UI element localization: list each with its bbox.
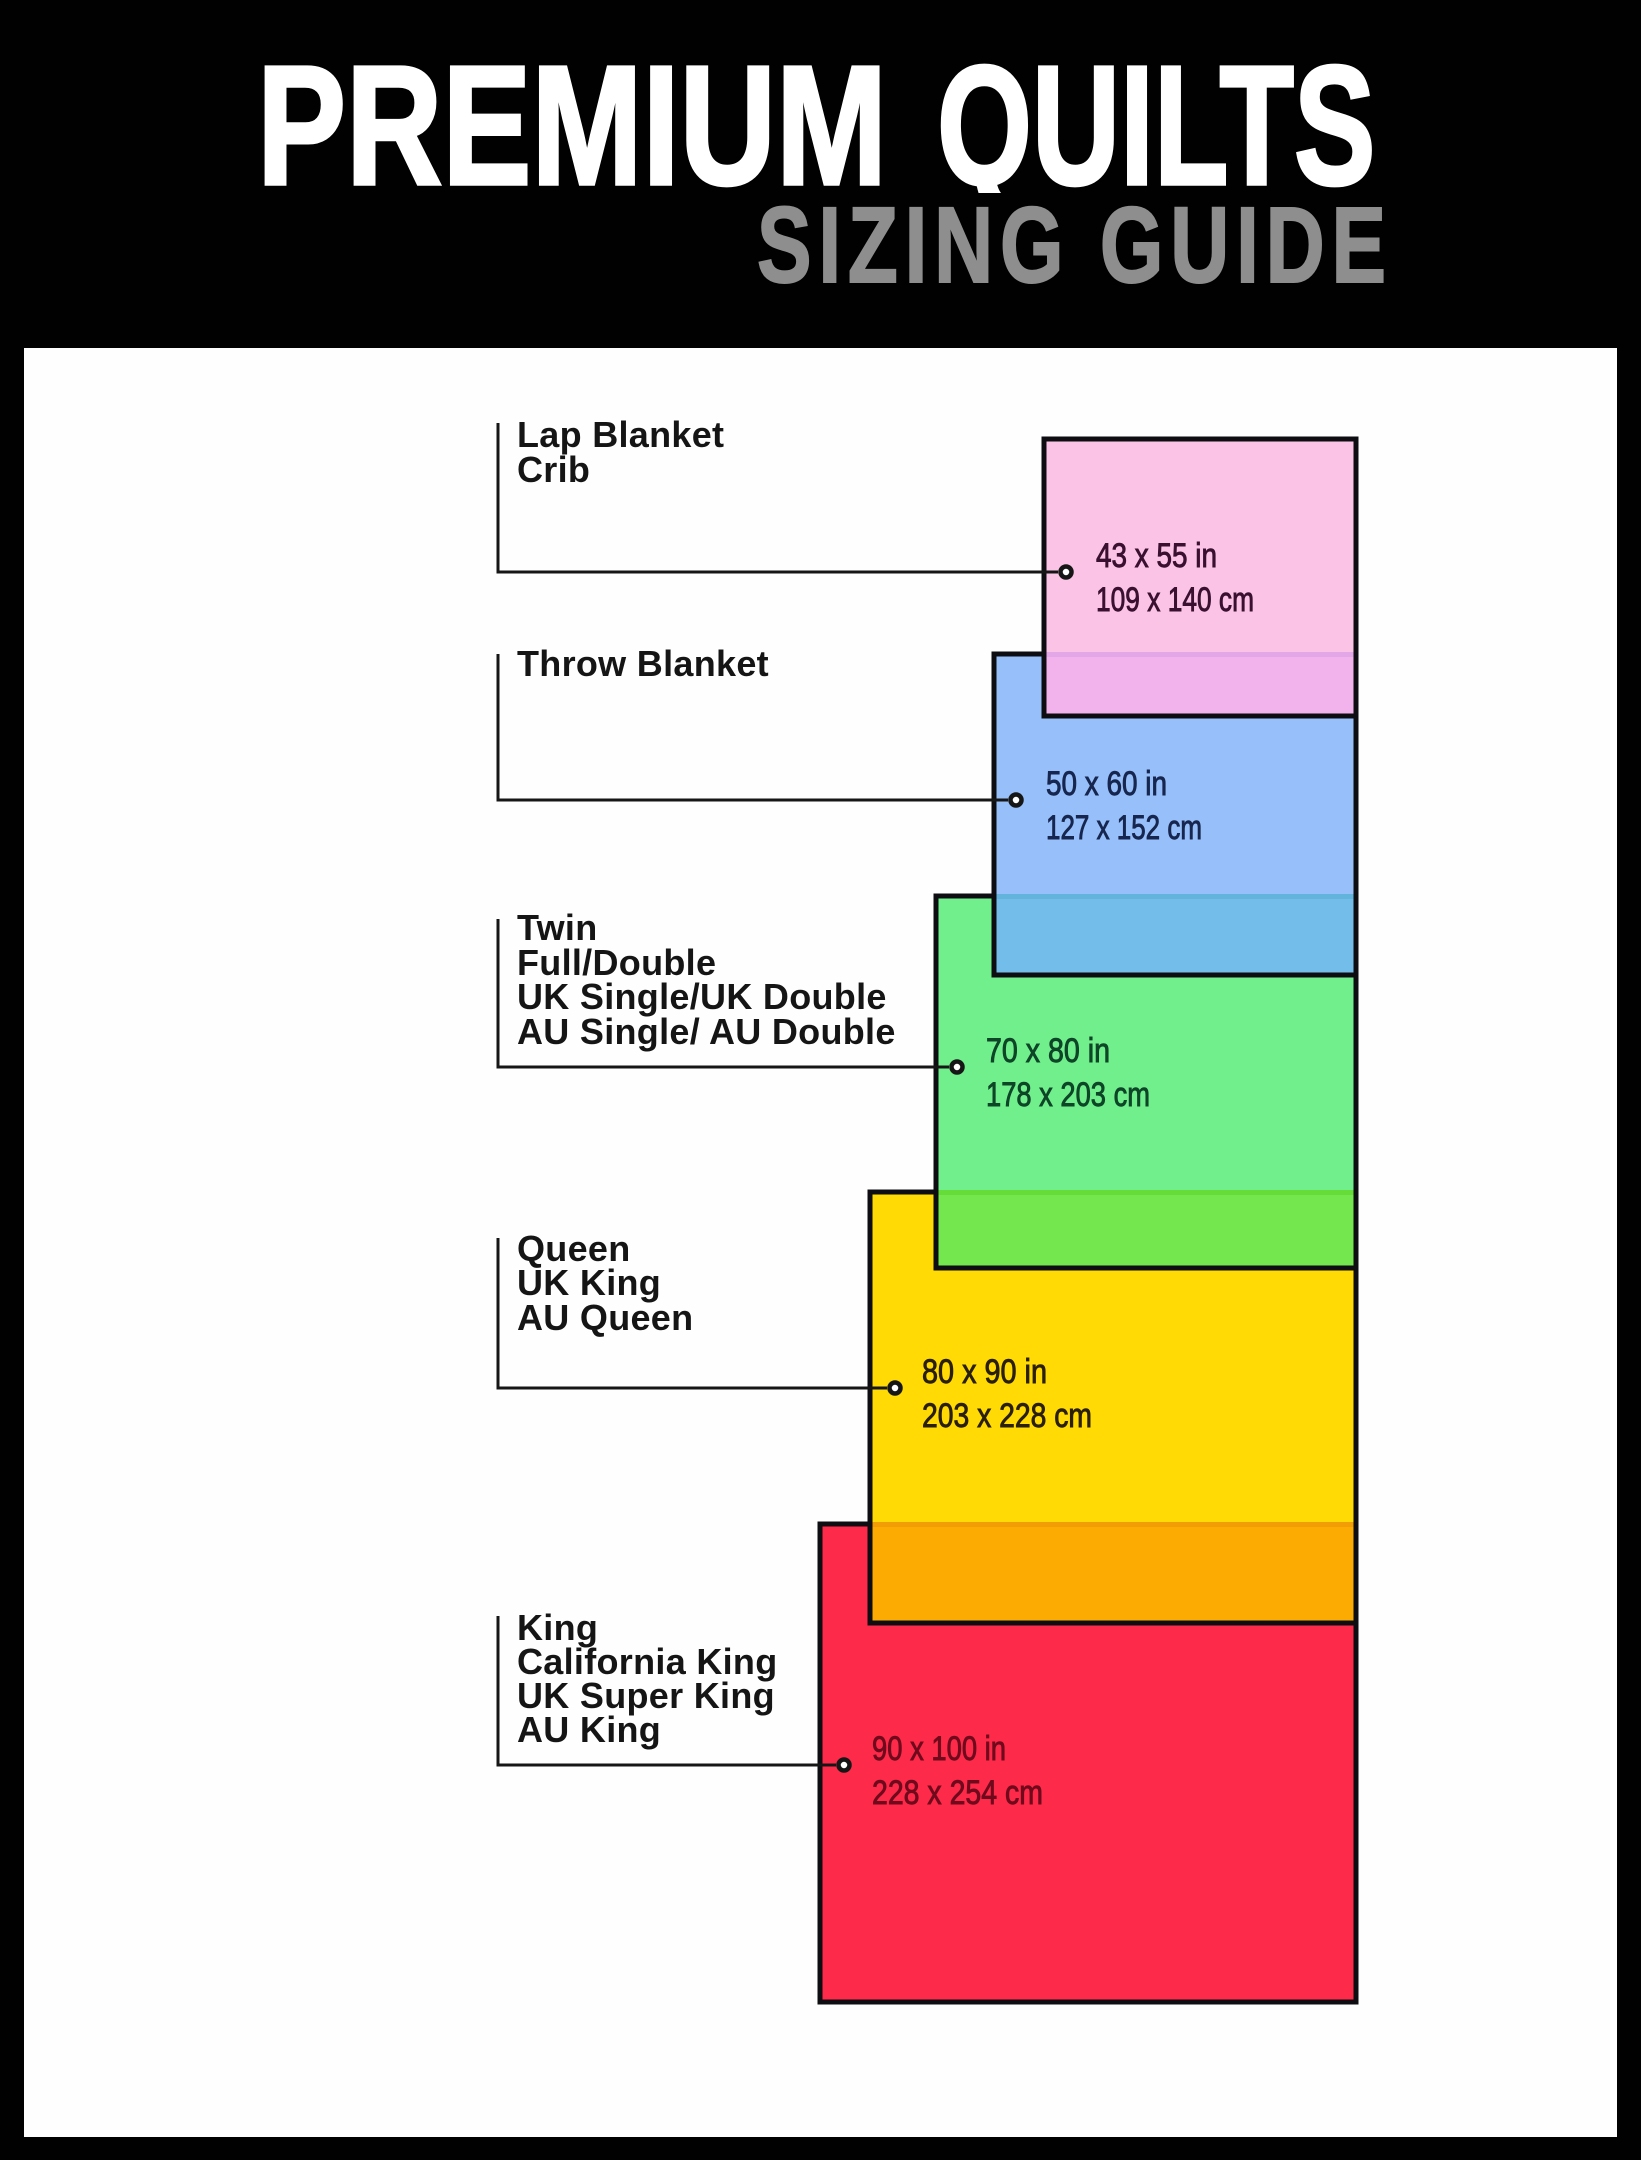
svg-text:Crib: Crib	[517, 449, 590, 490]
svg-text:AU Single/ AU Double: AU Single/ AU Double	[517, 1011, 896, 1052]
svg-text:50 x 60 in: 50 x 60 in	[1046, 765, 1167, 803]
svg-text:127 x 152 cm: 127 x 152 cm	[1046, 809, 1202, 847]
svg-text:Throw Blanket: Throw Blanket	[517, 643, 769, 684]
svg-text:228 x 254 cm: 228 x 254 cm	[872, 1774, 1043, 1812]
svg-text:70 x 80 in: 70 x 80 in	[986, 1032, 1110, 1070]
svg-text:43 x 55 in: 43 x 55 in	[1096, 537, 1217, 575]
svg-text:109 x 140 cm: 109 x 140 cm	[1096, 581, 1254, 619]
svg-text:203 x 228 cm: 203 x 228 cm	[922, 1397, 1092, 1435]
svg-text:90 x 100 in: 90 x 100 in	[872, 1730, 1006, 1768]
svg-text:AU King: AU King	[517, 1709, 661, 1750]
svg-text:AU Queen: AU Queen	[517, 1297, 693, 1338]
svg-text:80 x 90 in: 80 x 90 in	[922, 1353, 1047, 1391]
svg-text:SIZING GUIDE: SIZING GUIDE	[757, 185, 1393, 306]
svg-text:178 x 203 cm: 178 x 203 cm	[986, 1076, 1150, 1114]
